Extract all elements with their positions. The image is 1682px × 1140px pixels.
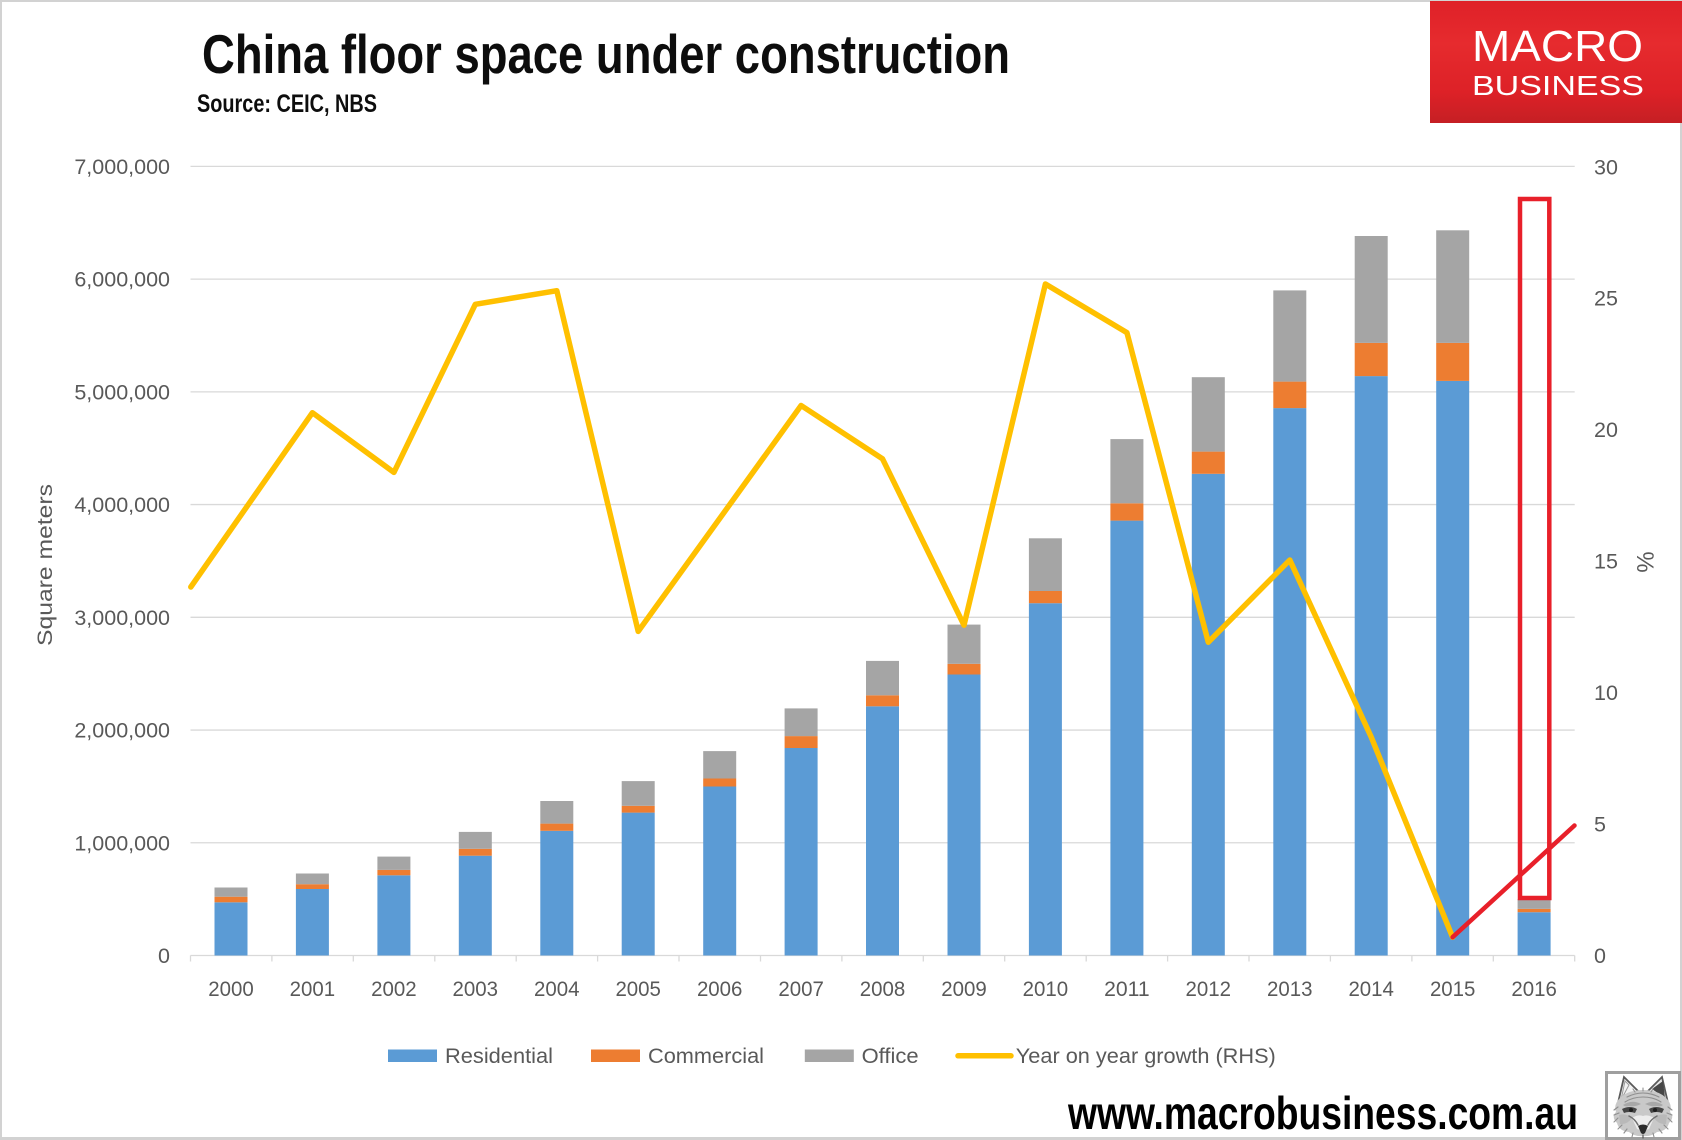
svg-text:20: 20 xyxy=(1594,418,1618,442)
svg-text:25: 25 xyxy=(1594,287,1618,311)
svg-text:2,000,000: 2,000,000 xyxy=(74,719,170,743)
svg-text:Year on year growth (RHS): Year on year growth (RHS) xyxy=(1016,1044,1276,1068)
svg-text:2011: 2011 xyxy=(1104,977,1150,1001)
svg-text:MACRO: MACRO xyxy=(1472,22,1643,71)
svg-text:2015: 2015 xyxy=(1430,977,1476,1001)
svg-text:2004: 2004 xyxy=(534,977,580,1001)
svg-text:2010: 2010 xyxy=(1023,977,1069,1001)
svg-text:30: 30 xyxy=(1594,155,1618,179)
svg-text:2002: 2002 xyxy=(371,977,417,1001)
svg-text:5,000,000: 5,000,000 xyxy=(74,380,170,404)
svg-text:China floor space under constr: China floor space under construction xyxy=(202,23,1010,85)
svg-text:2012: 2012 xyxy=(1186,977,1232,1001)
svg-text:10: 10 xyxy=(1594,681,1618,705)
svg-text:0: 0 xyxy=(158,944,170,968)
svg-text:%: % xyxy=(1631,551,1658,572)
svg-text:www.macrobusiness.com.au: www.macrobusiness.com.au xyxy=(1067,1087,1578,1139)
svg-text:2008: 2008 xyxy=(860,977,906,1001)
svg-text:Residential: Residential xyxy=(445,1044,553,1068)
svg-text:2003: 2003 xyxy=(453,977,499,1001)
svg-text:2000: 2000 xyxy=(208,977,254,1001)
svg-text:2016: 2016 xyxy=(1511,977,1557,1001)
svg-text:BUSINESS: BUSINESS xyxy=(1472,70,1644,101)
svg-text:2009: 2009 xyxy=(941,977,987,1001)
svg-text:3,000,000: 3,000,000 xyxy=(74,606,170,630)
svg-text:2001: 2001 xyxy=(290,977,336,1001)
svg-text:0: 0 xyxy=(1594,944,1606,968)
svg-text:6,000,000: 6,000,000 xyxy=(74,268,170,292)
svg-text:Square meters: Square meters xyxy=(33,484,57,646)
svg-text:Office: Office xyxy=(862,1044,919,1068)
svg-text:1,000,000: 1,000,000 xyxy=(74,831,170,855)
svg-text:5: 5 xyxy=(1594,813,1606,837)
svg-text:15: 15 xyxy=(1594,550,1618,574)
svg-text:2005: 2005 xyxy=(615,977,661,1001)
svg-text:2013: 2013 xyxy=(1267,977,1313,1001)
svg-text:2006: 2006 xyxy=(697,977,743,1001)
svg-text:2007: 2007 xyxy=(778,977,824,1001)
svg-text:4,000,000: 4,000,000 xyxy=(74,493,170,517)
svg-text:Source: CEIC, NBS: Source: CEIC, NBS xyxy=(197,90,377,118)
svg-text:Commercial: Commercial xyxy=(648,1044,764,1068)
svg-text:2014: 2014 xyxy=(1348,977,1394,1001)
svg-text:7,000,000: 7,000,000 xyxy=(74,155,170,179)
